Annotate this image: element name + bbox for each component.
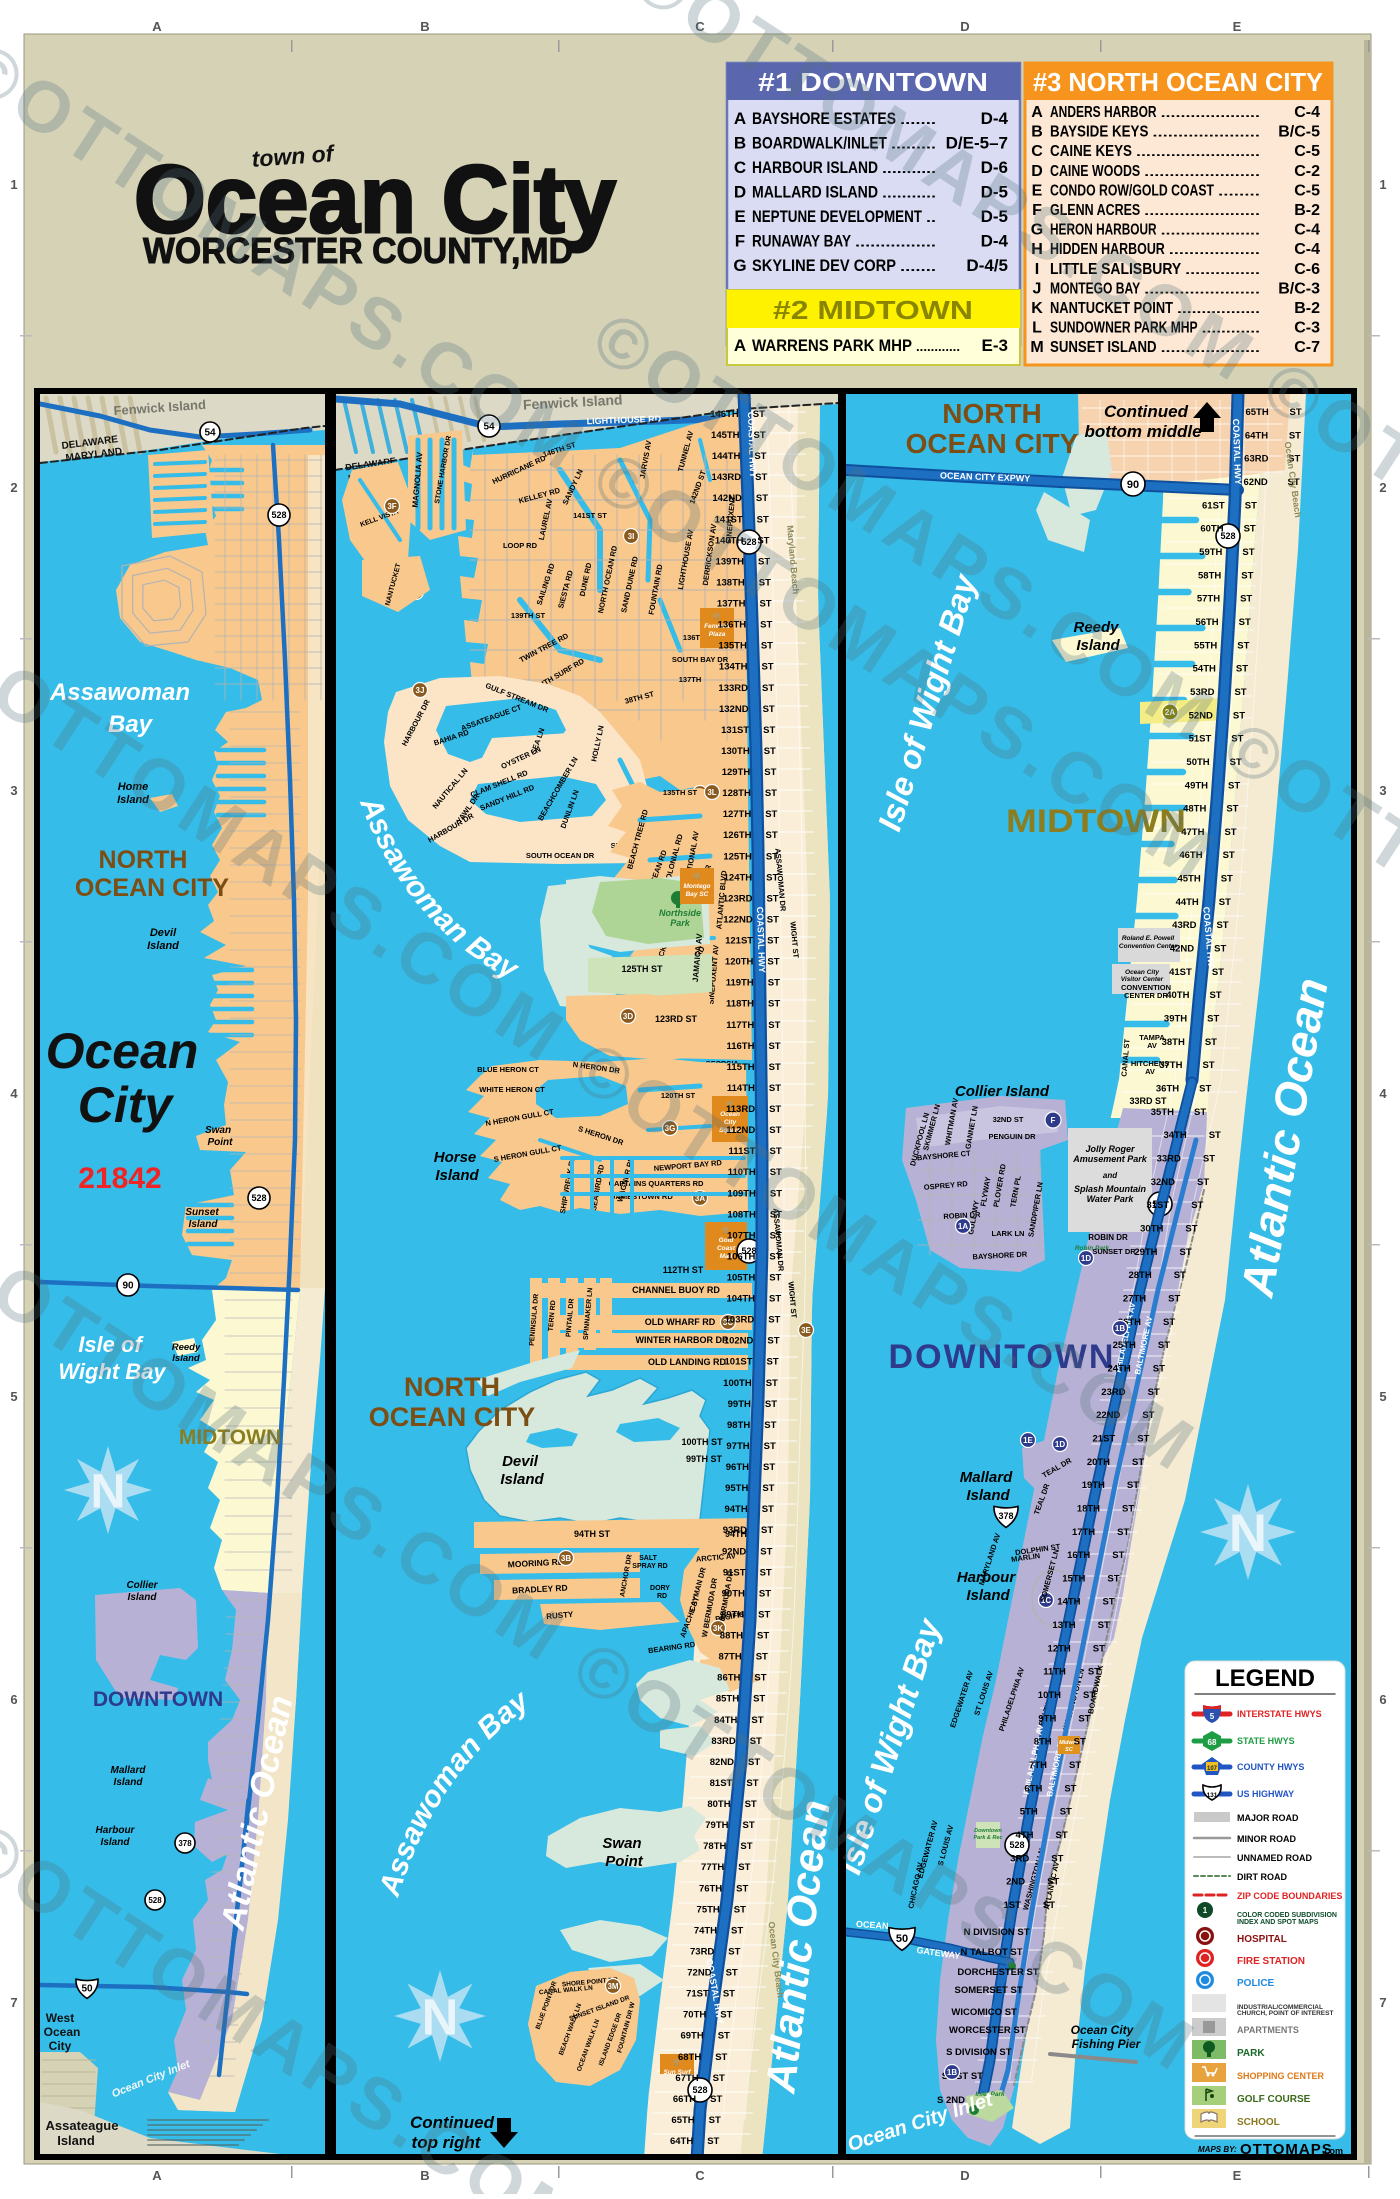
svg-text:ST: ST (769, 1294, 781, 1305)
svg-text:Island: Island (189, 1219, 219, 1230)
svg-text:2ND: 2ND (1006, 1877, 1025, 1888)
svg-text:MALLARD ISLAND: MALLARD ISLAND (752, 183, 878, 202)
svg-text:ST: ST (1051, 1853, 1063, 1864)
svg-text:ST: ST (1163, 1317, 1175, 1328)
svg-text:86TH: 86TH (717, 1673, 740, 1684)
svg-text:ST: ST (1216, 920, 1228, 931)
svg-text:ST: ST (765, 788, 777, 799)
svg-text:ST: ST (1203, 1154, 1215, 1165)
svg-text:ST: ST (1069, 1760, 1081, 1771)
svg-text:ST: ST (738, 1862, 750, 1873)
svg-text:124TH: 124TH (724, 872, 753, 883)
svg-text:99TH ST: 99TH ST (686, 1454, 723, 1464)
svg-text:16TH: 16TH (1067, 1550, 1090, 1561)
svg-text:ST: ST (709, 2115, 721, 2126)
svg-text:103RD: 103RD (725, 1315, 755, 1326)
svg-text:SPRAY RD: SPRAY RD (632, 1563, 667, 1570)
svg-text:UNNAMED ROAD: UNNAMED ROAD (1237, 1853, 1312, 1863)
svg-text:79TH: 79TH (705, 1820, 728, 1831)
svg-text:ST: ST (1158, 1340, 1170, 1351)
svg-text:Point: Point (208, 1137, 234, 1148)
svg-text:ST: ST (1060, 1807, 1072, 1818)
svg-text:SOUTH OCEAN DR: SOUTH OCEAN DR (526, 851, 595, 860)
svg-text:ST: ST (767, 936, 779, 947)
svg-text:28TH: 28TH (1128, 1270, 1151, 1281)
svg-text:ST: ST (1207, 1014, 1219, 1025)
svg-text:ST: ST (754, 1673, 766, 1684)
svg-text:378: 378 (178, 1839, 192, 1848)
svg-text:POLICE: POLICE (1237, 1978, 1275, 1989)
svg-text:76TH: 76TH (699, 1883, 722, 1894)
svg-text:1A: 1A (958, 1222, 968, 1231)
svg-text:Ocean: Ocean (46, 1023, 199, 1079)
svg-text:ST: ST (766, 1378, 778, 1389)
svg-text:OCEAN CITY: OCEAN CITY (369, 1402, 536, 1432)
svg-text:ST: ST (763, 725, 775, 736)
svg-text:11TH: 11TH (1043, 1667, 1066, 1678)
svg-text:Roland E. Powell: Roland E. Powell (1122, 935, 1175, 942)
svg-text:US HIGHWAY: US HIGHWAY (1237, 1789, 1294, 1799)
svg-text:59TH: 59TH (1199, 547, 1222, 558)
svg-text:Island: Island (500, 1471, 544, 1488)
svg-text:91ST: 91ST (723, 1567, 746, 1578)
svg-text:15TH: 15TH (1062, 1573, 1085, 1584)
svg-text:C-5: C-5 (1294, 143, 1320, 160)
svg-text:D: D (960, 19, 969, 34)
svg-text:ST: ST (710, 2094, 722, 2105)
svg-text:4TH: 4TH (1016, 1830, 1034, 1841)
svg-text:Island: Island (101, 1837, 131, 1848)
svg-text:Park: Park (670, 918, 691, 928)
svg-text:Ocean: Ocean (44, 2025, 81, 2039)
svg-text:................: ................ (855, 235, 936, 250)
svg-text:117TH: 117TH (726, 1020, 754, 1031)
svg-text:118TH: 118TH (726, 999, 754, 1010)
svg-text:ST: ST (760, 1567, 772, 1578)
svg-text:Ocean City: Ocean City (1125, 969, 1159, 976)
svg-text:COLOR CODED SUBDIVISION: COLOR CODED SUBDIVISION (1237, 1912, 1337, 1919)
svg-text:....................: .................... (1161, 224, 1260, 238)
svg-text:E-3: E-3 (982, 336, 1008, 355)
svg-text:ST: ST (767, 914, 779, 925)
svg-text:C-4: C-4 (1294, 241, 1320, 258)
svg-text:ST: ST (758, 1609, 770, 1620)
svg-text:COUNTY HWYS: COUNTY HWYS (1237, 1762, 1304, 1772)
svg-text:67TH: 67TH (675, 2073, 698, 2084)
svg-text:DOWNTOWN: DOWNTOWN (93, 1688, 223, 1711)
svg-text:ST: ST (769, 1104, 781, 1115)
svg-text:ST: ST (761, 641, 773, 652)
svg-text:30TH: 30TH (1140, 1223, 1163, 1234)
svg-text:C: C (695, 2168, 705, 2183)
svg-text:99TH: 99TH (728, 1399, 751, 1410)
svg-text:ST: ST (718, 2031, 730, 2042)
svg-text:ST: ST (761, 662, 773, 673)
svg-text:ST: ST (1168, 1293, 1180, 1304)
svg-text:ST: ST (1244, 524, 1256, 535)
svg-text:3RD: 3RD (1010, 1853, 1029, 1864)
svg-text:A: A (1031, 104, 1043, 121)
svg-text:N: N (91, 1465, 126, 1519)
svg-text:ST: ST (742, 1820, 754, 1831)
svg-text:119TH: 119TH (726, 978, 754, 989)
svg-text:D: D (734, 183, 746, 202)
svg-text:37TH: 37TH (1159, 1060, 1182, 1071)
svg-text:ST: ST (1107, 1573, 1119, 1584)
svg-text:A: A (152, 2168, 162, 2183)
svg-text:100TH ST: 100TH ST (681, 1437, 723, 1447)
svg-text:Horse: Horse (434, 1149, 477, 1166)
svg-text:...............: ............... (1185, 263, 1260, 277)
svg-text:ST: ST (726, 1968, 738, 1979)
svg-text:3D: 3D (623, 1012, 633, 1021)
svg-text:K: K (1031, 300, 1043, 317)
svg-text:3L: 3L (707, 788, 716, 797)
svg-text:Jolly Roger: Jolly Roger (1085, 1144, 1135, 1154)
svg-text:43RD: 43RD (1172, 920, 1196, 931)
svg-text:DORY: DORY (650, 1585, 670, 1592)
svg-text:Plaza: Plaza (709, 631, 726, 638)
svg-text:ST: ST (1185, 1223, 1197, 1234)
svg-text:DIRT ROAD: DIRT ROAD (1237, 1872, 1287, 1882)
svg-text:ST: ST (764, 746, 776, 757)
svg-text:E: E (1233, 19, 1242, 34)
svg-text:70TH: 70TH (683, 2010, 706, 2021)
svg-text:68TH: 68TH (678, 2052, 701, 2063)
svg-text:25TH: 25TH (1113, 1340, 1136, 1351)
svg-text:E: E (734, 207, 745, 226)
svg-text:....................: .................... (1161, 106, 1260, 120)
svg-text:WORCESTER ST: WORCESTER ST (949, 2025, 1026, 2036)
svg-text:2: 2 (10, 480, 17, 495)
svg-text:94TH ST: 94TH ST (574, 1529, 611, 1539)
svg-text:B: B (734, 134, 746, 153)
svg-text:107TH: 107TH (727, 1230, 756, 1241)
svg-text:58TH: 58TH (1198, 570, 1221, 581)
svg-text:Continued: Continued (1104, 402, 1189, 421)
svg-text:6TH: 6TH (1024, 1783, 1042, 1794)
svg-text:AV: AV (1147, 1041, 1157, 1050)
svg-text:7: 7 (1379, 1995, 1386, 2010)
svg-text:ST: ST (767, 957, 779, 968)
svg-text:ST: ST (753, 1694, 765, 1705)
svg-text:3: 3 (10, 783, 17, 798)
svg-text:136TH: 136TH (718, 620, 747, 631)
svg-text:4: 4 (1379, 1086, 1387, 1101)
svg-text:Point: Point (605, 1853, 643, 1870)
svg-text:ST: ST (768, 978, 780, 989)
svg-text:Splash Mountain: Splash Mountain (1074, 1184, 1147, 1194)
svg-text:123RD ST: 123RD ST (655, 1014, 698, 1024)
svg-text:Visitor Center: Visitor Center (1121, 976, 1164, 983)
svg-text:19TH: 19TH (1082, 1480, 1105, 1491)
svg-text:.......................: ....................... (1144, 204, 1260, 218)
svg-text:Devil: Devil (502, 1453, 539, 1470)
svg-text:66TH: 66TH (673, 2094, 696, 2105)
svg-text:E: E (1233, 2168, 1242, 2183)
svg-text:ST: ST (728, 1946, 740, 1957)
svg-text:Assateague: Assateague (46, 2118, 119, 2133)
svg-text:ST: ST (768, 1020, 780, 1031)
svg-text:and: and (1103, 1171, 1118, 1180)
svg-text:64TH: 64TH (670, 2136, 693, 2147)
svg-text:3E: 3E (801, 1326, 811, 1335)
svg-text:38TH: 38TH (1162, 1037, 1185, 1048)
svg-text:92ND: 92ND (722, 1546, 746, 1557)
svg-text:SCHOOL: SCHOOL (1237, 2117, 1280, 2128)
svg-text:ST: ST (1240, 594, 1252, 605)
svg-text:1B: 1B (1115, 1324, 1125, 1333)
svg-text:90: 90 (1127, 479, 1139, 491)
svg-text:ST: ST (765, 809, 777, 820)
svg-text:Northside: Northside (659, 908, 701, 918)
svg-text:OLD LANDING RD: OLD LANDING RD (648, 1357, 726, 1367)
svg-text:ST: ST (1098, 1620, 1110, 1631)
svg-text:Island: Island (147, 940, 179, 952)
svg-text:104TH: 104TH (726, 1294, 755, 1305)
svg-text:ST: ST (734, 1904, 746, 1915)
svg-text:100TH: 100TH (723, 1378, 752, 1389)
svg-text:PARK: PARK (1237, 2048, 1265, 2059)
svg-text:94TH: 94TH (724, 1504, 747, 1515)
svg-text:ST: ST (1180, 1247, 1192, 1258)
svg-text:1E: 1E (1023, 1436, 1033, 1445)
svg-text:34TH: 34TH (1163, 1130, 1186, 1141)
svg-text:..: .. (926, 210, 936, 225)
svg-text:ST: ST (1153, 1363, 1165, 1374)
svg-text:.........................: ......................... (1136, 145, 1260, 159)
svg-text:71ST: 71ST (686, 1989, 709, 2000)
svg-text:127TH: 127TH (723, 809, 752, 820)
svg-text:Island: Island (435, 1167, 479, 1184)
svg-text:GOLF COURSE: GOLF COURSE (1237, 2094, 1311, 2105)
svg-text:C-3: C-3 (1294, 320, 1320, 337)
svg-text:134TH: 134TH (719, 662, 748, 673)
svg-text:20TH: 20TH (1087, 1457, 1110, 1468)
svg-text:44TH: 44TH (1176, 897, 1199, 908)
svg-text:Island: Island (114, 1777, 144, 1788)
svg-text:SALT: SALT (639, 1555, 657, 1562)
svg-text:35TH: 35TH (1151, 1107, 1174, 1118)
svg-text:MAPS BY:: MAPS BY: (1198, 2145, 1237, 2154)
svg-text:ST: ST (723, 1989, 735, 2000)
svg-text:ZIP CODE BOUNDARIES: ZIP CODE BOUNDARIES (1237, 1891, 1342, 1901)
svg-text:ST: ST (762, 1504, 774, 1515)
svg-text:ST: ST (766, 830, 778, 841)
svg-text:5TH: 5TH (1020, 1807, 1038, 1818)
svg-text:CAINE WOODS: CAINE WOODS (1050, 163, 1140, 180)
svg-text:9TH: 9TH (1038, 1713, 1056, 1724)
svg-text:Park & Rec: Park & Rec (973, 1835, 1002, 1841)
svg-text:ST: ST (768, 1315, 780, 1326)
svg-text:62ND: 62ND (1244, 477, 1268, 488)
svg-text:B/C-5: B/C-5 (1278, 124, 1320, 141)
svg-text:ST: ST (1088, 1667, 1100, 1678)
svg-text:18TH: 18TH (1077, 1503, 1100, 1514)
svg-text:F: F (1051, 1116, 1056, 1125)
svg-text:122ND: 122ND (723, 914, 753, 925)
svg-text:131ST: 131ST (721, 725, 749, 736)
svg-text:ST: ST (1194, 1107, 1206, 1118)
svg-text:FIRE STATION: FIRE STATION (1237, 1956, 1305, 1967)
svg-text:1: 1 (1203, 1906, 1208, 1915)
svg-text:A: A (734, 336, 746, 355)
svg-text:41ST: 41ST (1169, 967, 1192, 978)
svg-text:42ND: 42ND (1170, 944, 1194, 955)
svg-text:77TH: 77TH (701, 1862, 724, 1873)
svg-text:C-5: C-5 (1294, 182, 1320, 199)
svg-text:C-4: C-4 (1294, 222, 1320, 239)
svg-text:98TH: 98TH (727, 1420, 750, 1431)
svg-text:ST: ST (762, 683, 774, 694)
svg-text:LARK LN: LARK LN (992, 1229, 1025, 1238)
svg-text:Devil: Devil (150, 927, 177, 939)
svg-text:D: D (960, 2168, 969, 2183)
svg-text:West: West (46, 2011, 74, 2025)
svg-text:131: 131 (1207, 1792, 1218, 1799)
svg-text:ST: ST (763, 1462, 775, 1473)
svg-text:ST: ST (767, 1336, 779, 1347)
svg-text:528: 528 (271, 510, 286, 520)
svg-text:27TH: 27TH (1123, 1293, 1146, 1304)
svg-text:4: 4 (10, 1086, 18, 1101)
svg-text:C-2: C-2 (1294, 163, 1320, 180)
svg-text:ST: ST (1245, 500, 1257, 511)
svg-text:1: 1 (10, 177, 17, 192)
svg-text:C: C (1031, 143, 1043, 160)
svg-text:Swan: Swan (205, 1125, 231, 1136)
svg-text:..................: .................. (1169, 243, 1260, 257)
svg-text:........: ........ (1218, 184, 1260, 198)
svg-text:ST: ST (1083, 1690, 1095, 1701)
svg-text:ST: ST (1239, 617, 1251, 628)
svg-text:121ST: 121ST (725, 936, 753, 947)
svg-text:93RD: 93RD (723, 1525, 747, 1536)
svg-text:ST: ST (1064, 1783, 1076, 1794)
svg-text:13TH: 13TH (1052, 1620, 1075, 1631)
svg-text:WINTER HARBOR DR: WINTER HARBOR DR (636, 1335, 729, 1345)
svg-text:WARRENS PARK MHP: WARRENS PARK MHP (752, 336, 912, 355)
svg-text:96TH: 96TH (726, 1462, 749, 1473)
svg-text:Swan: Swan (602, 1835, 641, 1852)
svg-text:APARTMENTS: APARTMENTS (1237, 2025, 1299, 2035)
svg-text:A: A (734, 109, 746, 128)
svg-text:90: 90 (122, 1281, 134, 1292)
svg-text:12TH: 12TH (1048, 1643, 1071, 1654)
svg-text:SKYLINE DEV CORP: SKYLINE DEV CORP (752, 256, 896, 275)
svg-text:ST: ST (1197, 1177, 1209, 1188)
svg-text:ST: ST (713, 2073, 725, 2084)
svg-text:N: N (1229, 1504, 1267, 1563)
svg-text:ST: ST (769, 1062, 781, 1073)
svg-text:ST: ST (765, 1399, 777, 1410)
svg-text:125TH: 125TH (723, 851, 752, 862)
svg-text:C-6: C-6 (1294, 261, 1320, 278)
svg-text:115TH: 115TH (727, 1062, 755, 1073)
svg-text:87TH: 87TH (718, 1652, 741, 1663)
svg-text:3F: 3F (387, 502, 396, 511)
svg-text:ST: ST (768, 999, 780, 1010)
svg-text:.com: .com (1322, 2146, 1343, 2156)
svg-text:63RD: 63RD (1244, 454, 1268, 465)
svg-text:WICOMICO ST: WICOMICO ST (951, 2007, 1017, 2018)
svg-text:LEGEND: LEGEND (1215, 1665, 1315, 1692)
svg-text:NEPTUNE DEVELOPMENT: NEPTUNE DEVELOPMENT (752, 207, 922, 226)
svg-text:ST: ST (1219, 897, 1231, 908)
svg-text:132ND: 132ND (719, 704, 749, 715)
svg-text:135TH ST: 135TH ST (663, 788, 698, 797)
svg-text:STATE HWYS: STATE HWYS (1237, 1736, 1295, 1746)
svg-text:ST: ST (769, 1273, 781, 1284)
svg-text:120TH: 120TH (725, 957, 754, 968)
svg-text:57TH: 57TH (1197, 594, 1220, 605)
svg-text:CHANNEL BUOY RD: CHANNEL BUOY RD (632, 1285, 720, 1295)
svg-text:89TH: 89TH (721, 1609, 744, 1620)
svg-text:135TH: 135TH (718, 641, 747, 652)
svg-text:ST: ST (767, 1357, 779, 1368)
svg-text:Downtown: Downtown (974, 1828, 1002, 1834)
svg-text:S DIVISION ST: S DIVISION ST (946, 2047, 1012, 2058)
svg-text:21842: 21842 (78, 1162, 161, 1195)
svg-text:B/C-3: B/C-3 (1278, 280, 1320, 297)
svg-text:ST: ST (1103, 1597, 1115, 1608)
svg-text:112TH ST: 112TH ST (663, 1265, 704, 1275)
svg-text:ST: ST (1093, 1643, 1105, 1654)
svg-text:G: G (733, 256, 746, 275)
svg-text:55TH: 55TH (1194, 640, 1217, 651)
svg-text:31ST: 31ST (1146, 1200, 1169, 1211)
svg-text:INDEX AND SPOT MAPS: INDEX AND SPOT MAPS (1237, 1919, 1319, 1926)
svg-text:8TH: 8TH (1034, 1737, 1052, 1748)
svg-text:ST: ST (1074, 1737, 1086, 1748)
svg-text:BAYSIDE KEYS: BAYSIDE KEYS (1050, 124, 1149, 141)
svg-text:123RD: 123RD (723, 893, 753, 904)
svg-text:3J: 3J (416, 686, 425, 695)
svg-text:49TH: 49TH (1185, 780, 1208, 791)
svg-text:Bay SC: Bay SC (686, 891, 709, 898)
svg-text:OLD WHARF RD: OLD WHARF RD (645, 1317, 716, 1327)
svg-text:Sunset: Sunset (185, 1207, 219, 1218)
svg-text:73RD: 73RD (690, 1946, 714, 1957)
svg-text:29TH: 29TH (1134, 1247, 1157, 1258)
svg-text:.......................: ....................... (1144, 165, 1260, 179)
svg-text:L: L (1032, 320, 1042, 337)
svg-text:36TH: 36TH (1156, 1084, 1179, 1095)
svg-text:ST: ST (1202, 1060, 1214, 1071)
svg-text:ST: ST (1242, 547, 1254, 558)
svg-text:95TH: 95TH (725, 1483, 748, 1494)
svg-text:MAJOR ROAD: MAJOR ROAD (1237, 1813, 1299, 1823)
svg-text:MINOR ROAD: MINOR ROAD (1237, 1834, 1296, 1844)
svg-text:Convention Center: Convention Center (1119, 943, 1178, 950)
svg-text:M: M (1030, 339, 1043, 356)
svg-text:HOSPITAL: HOSPITAL (1237, 1934, 1287, 1945)
svg-text:ST: ST (759, 1588, 771, 1599)
svg-text:N: N (422, 1988, 459, 2045)
svg-text:88TH: 88TH (720, 1631, 743, 1642)
svg-text:B-2: B-2 (1294, 202, 1320, 219)
svg-text:7TH: 7TH (1029, 1760, 1047, 1771)
svg-text:133RD: 133RD (718, 683, 748, 694)
svg-text:137TH: 137TH (679, 675, 702, 684)
svg-text:Collier: Collier (126, 1580, 158, 1591)
svg-text:69TH: 69TH (680, 2031, 703, 2042)
svg-text:ST: ST (1127, 1480, 1139, 1491)
svg-text:Island: Island (966, 1487, 1010, 1504)
svg-text:ST: ST (1117, 1527, 1129, 1538)
svg-text:LOOP RD: LOOP RD (503, 541, 538, 550)
svg-text:C-4: C-4 (1294, 104, 1320, 121)
